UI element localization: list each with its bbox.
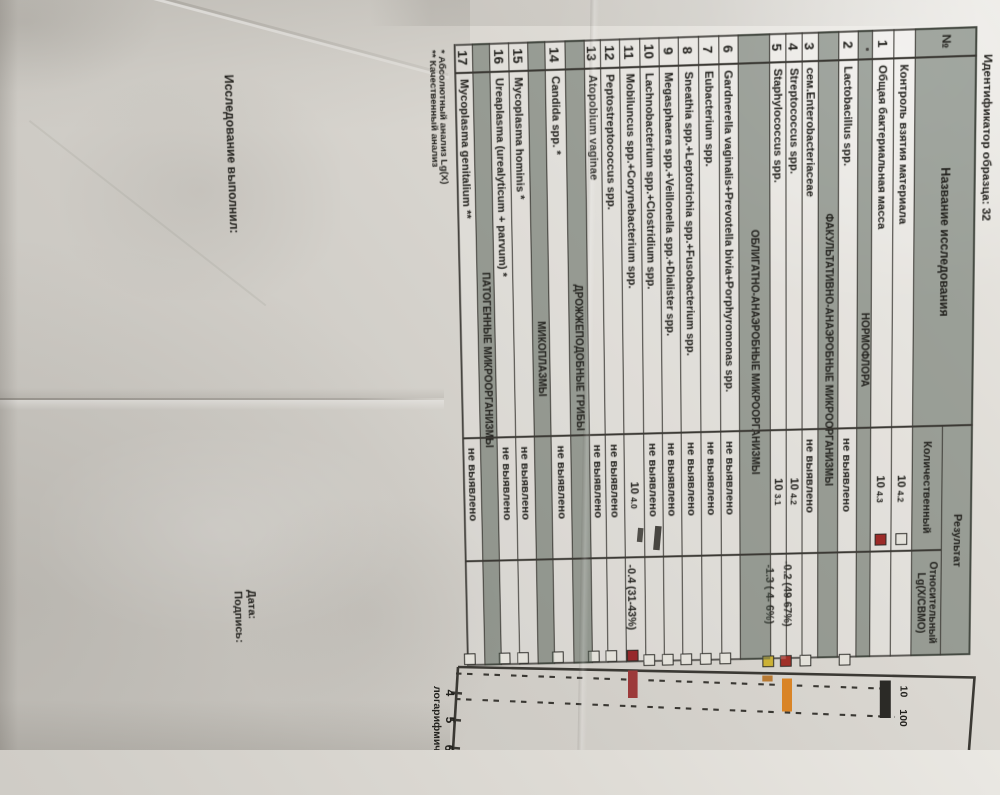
svg-text:10: 10 [898,686,910,698]
svg-text:5: 5 [443,717,457,724]
svg-text:4: 4 [443,690,457,697]
svg-text:логарифмическая шкала: логарифмическая шкала [431,686,443,750]
svg-text:100: 100 [897,709,909,727]
